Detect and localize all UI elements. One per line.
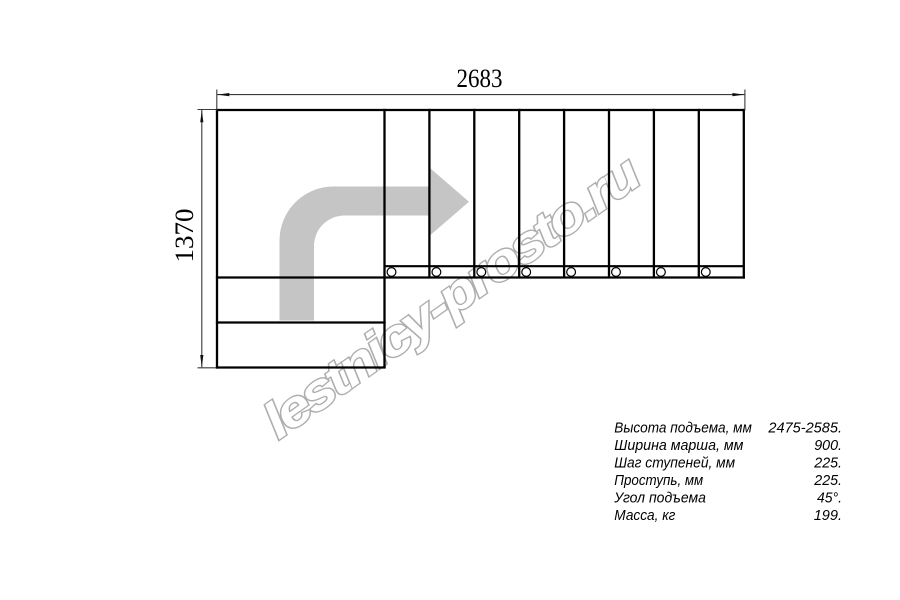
- svg-text:Шаг ступеней, мм: Шаг ступеней, мм: [614, 454, 735, 471]
- svg-text:225.: 225.: [813, 454, 842, 471]
- svg-text:Масса, кг: Масса, кг: [614, 507, 676, 524]
- svg-text:Ширина марша, мм: Ширина марша, мм: [614, 437, 744, 454]
- svg-text:2683: 2683: [457, 64, 503, 93]
- svg-text:Проступь, мм: Проступь, мм: [614, 472, 703, 489]
- svg-text:2475-2585.: 2475-2585.: [767, 419, 842, 436]
- svg-text:225.: 225.: [813, 472, 842, 489]
- svg-text:Угол подъема: Угол подъема: [613, 489, 706, 506]
- svg-text:900.: 900.: [814, 437, 842, 454]
- svg-text:Высота подъема, мм: Высота подъема, мм: [614, 419, 752, 436]
- svg-text:45°.: 45°.: [817, 489, 842, 506]
- svg-text:199.: 199.: [814, 507, 842, 524]
- svg-text:1370: 1370: [170, 209, 199, 263]
